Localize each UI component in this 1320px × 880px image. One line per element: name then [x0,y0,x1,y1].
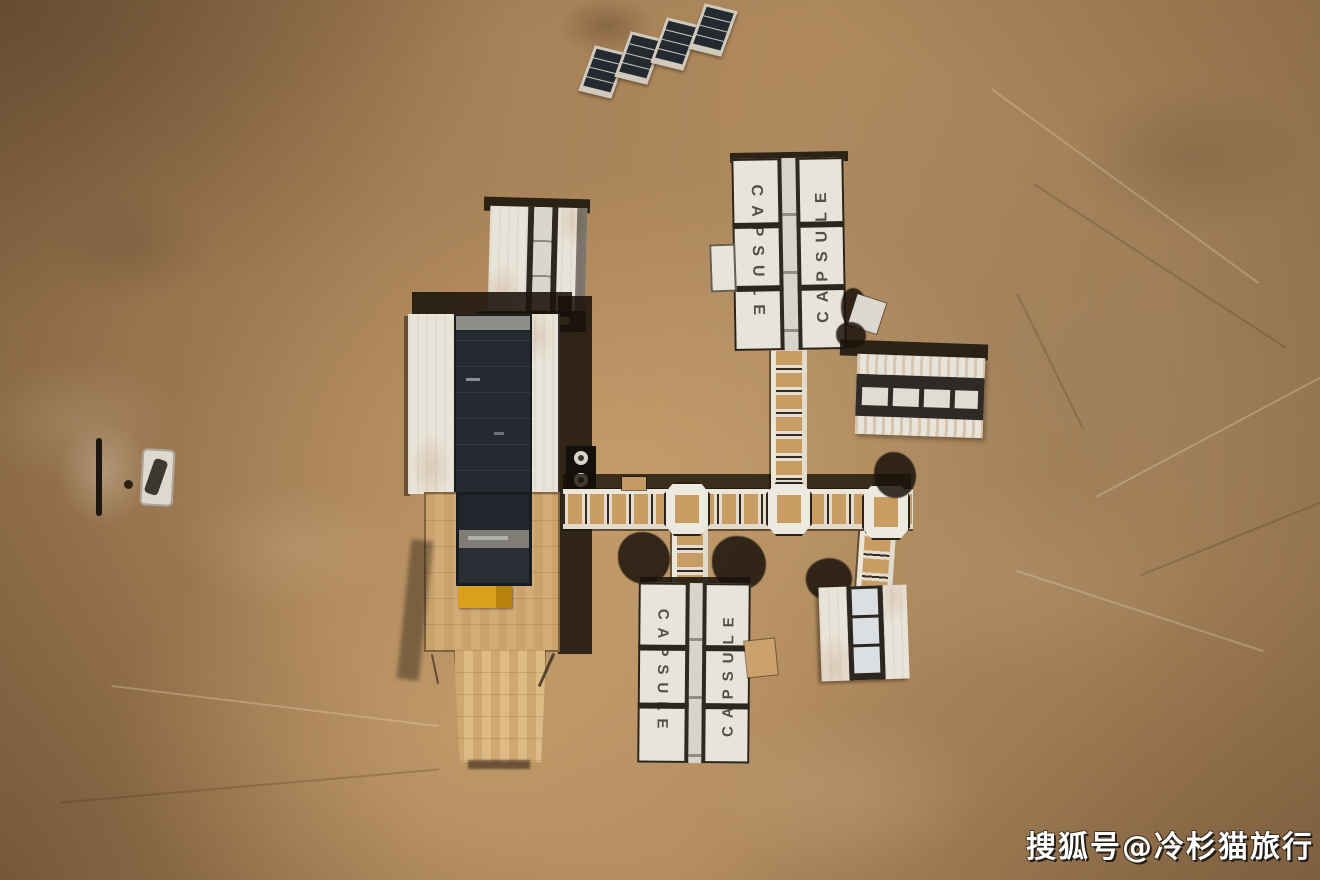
aerial-photo-desert-base: CAPSULE CAPSULE CAPSULE CAPSULE [0,0,1320,880]
corridor-vertical-southeast [856,531,896,593]
corridor-horizontal [563,489,913,529]
capsule-building-south: CAPSULE CAPSULE [637,583,751,764]
panel-glare [494,432,504,435]
capsule-text-east: CAPSULE [799,159,846,348]
ramp-foot-shadow [468,760,530,769]
solar-array [688,3,737,57]
panel-strip [846,585,885,680]
east-building-panel [893,388,920,407]
tire-track [61,768,440,803]
deck-dark-panel [456,492,532,586]
storage-box [744,639,778,678]
capsule-label: CAPSULE [653,609,671,737]
east-building-stripe [855,374,984,420]
main-hall-roof [408,314,560,494]
panel-glare [466,378,480,381]
strip-panel [853,646,880,673]
center-corridor-strip [777,158,802,350]
tire-track [1034,183,1287,348]
tire-track [1140,466,1320,576]
capsule-label: CAPSULE [719,609,737,737]
watermark: 搜狐号@冷杉猫旅行 [1026,822,1314,866]
corridor-shadow [563,474,911,490]
access-ramp [452,650,548,762]
tire-track [1016,570,1264,652]
corridor-vertical-north [771,346,807,492]
capsule-text-west: CAPSULE [639,585,686,761]
tire-track [1096,364,1320,497]
capsule-label: CAPSULE [747,185,767,325]
roof-vent [574,451,588,465]
ground-dot [124,480,133,489]
tire-track [991,88,1259,284]
parked-vehicle [140,448,176,507]
fence-pole [96,438,102,516]
tire-track [111,685,439,727]
roof-edge-shadow [412,292,572,316]
deck-stilt [431,654,439,684]
east-building-panel [924,389,951,408]
yellow-equipment [458,586,512,608]
solar-roof-panel [454,314,532,494]
capsule-building-north: CAPSULE CAPSULE [731,157,846,351]
strip-panel [852,617,879,644]
capsule-text-west: CAPSULE [733,160,780,349]
strip-panel [851,589,878,616]
rust-streaks [855,416,984,438]
crate-on-corridor [622,477,646,490]
panel-seams [454,314,532,494]
capsule-label: CAPSULE [813,184,833,324]
porch-module [709,244,737,293]
capsule-text-east: CAPSULE [705,585,751,761]
vehicle-body [144,458,169,497]
debris-pile [874,452,916,498]
corridor-junction-node [664,482,710,536]
center-corridor-strip [684,583,707,763]
east-building [855,354,986,438]
east-building-panel [955,390,979,409]
east-building-panel [862,387,889,406]
southeast-building [818,584,909,681]
tire-track [1016,293,1084,429]
panel-glare [468,536,508,540]
ground-smudge [58,422,150,526]
corridor-junction-node [766,482,812,536]
